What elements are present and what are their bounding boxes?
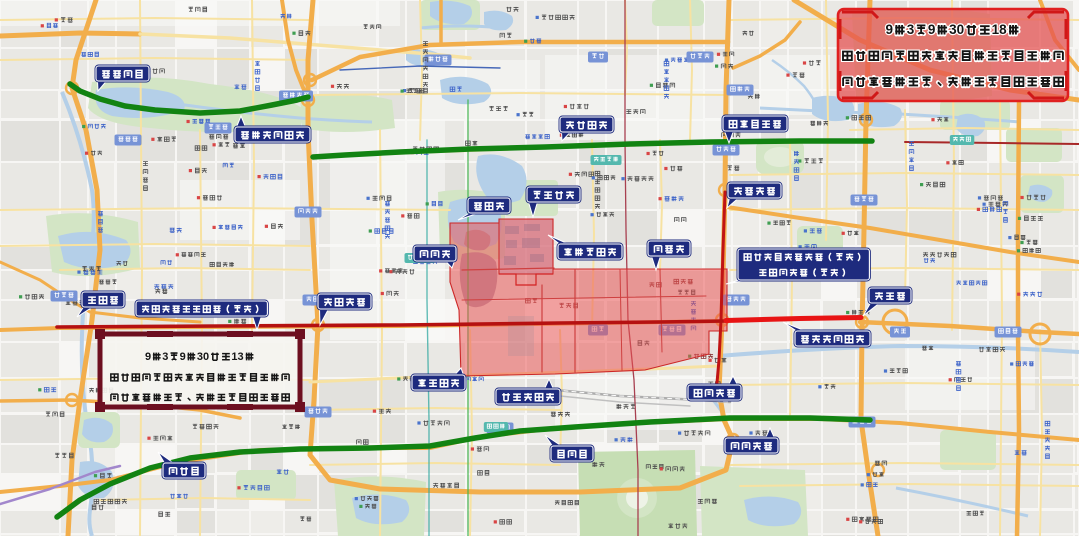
svg-text:3: 3 — [907, 22, 915, 37]
svg-text:13: 13 — [231, 351, 243, 363]
svg-text:9: 9 — [145, 351, 151, 363]
svg-text:3: 3 — [162, 351, 168, 363]
svg-text:18: 18 — [992, 22, 1008, 37]
svg-text:30: 30 — [949, 22, 964, 37]
svg-text:9: 9 — [886, 22, 894, 37]
svg-text:9: 9 — [180, 351, 186, 363]
svg-text:9: 9 — [928, 22, 936, 37]
svg-text:30: 30 — [197, 351, 209, 363]
